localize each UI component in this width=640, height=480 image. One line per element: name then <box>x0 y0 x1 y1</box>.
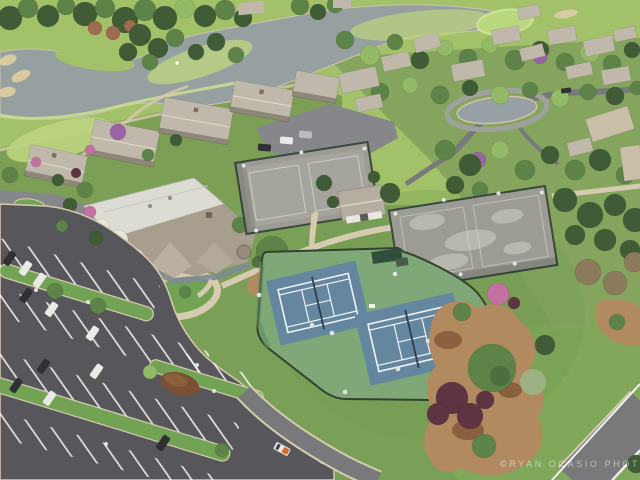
court-bench <box>369 304 375 308</box>
golf-cart <box>175 61 178 64</box>
car <box>280 136 294 144</box>
large-bush <box>468 344 516 392</box>
clubhouse-turret <box>237 245 251 259</box>
pink-flowering-shrub <box>487 283 509 305</box>
car <box>299 130 313 138</box>
aerial-photo: ©RYAN OCASIO PHOTOGR <box>0 0 640 480</box>
walkway <box>312 214 314 252</box>
scene <box>0 0 640 480</box>
watermark: ©RYAN OCASIO PHOTOGR <box>500 459 640 469</box>
car <box>258 143 272 151</box>
